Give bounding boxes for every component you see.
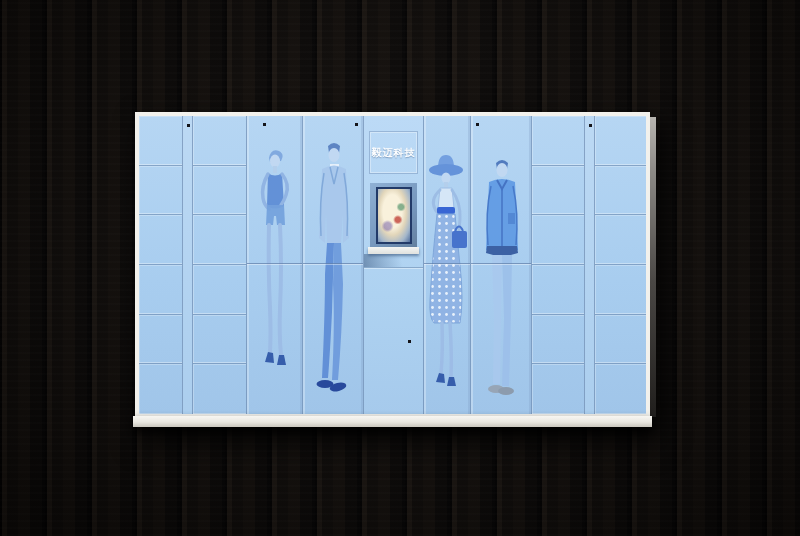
screen-recess [370, 183, 417, 247]
locker-cell [193, 166, 246, 216]
lock-dot [408, 340, 411, 343]
parcel-locker-cabinet: 毅迈科技 [135, 112, 656, 429]
screen-bezel [376, 187, 412, 244]
lock-dot [589, 124, 592, 127]
divider-stile [584, 116, 595, 414]
brand-label: 毅迈科技 [372, 146, 416, 160]
locker-cell [139, 315, 182, 365]
locker-cell [532, 315, 584, 365]
recess-shadow [364, 254, 419, 267]
cabinet-base [133, 416, 652, 427]
tall-locker-door-4 [470, 116, 531, 414]
locker-cell [193, 265, 246, 315]
locker-cell [139, 116, 182, 166]
brand-plate: 毅迈科技 [369, 131, 418, 174]
locker-cell [595, 116, 646, 166]
woman-tank-top-sketch-artwork [248, 148, 302, 406]
locker-cell [139, 166, 182, 216]
tall-locker-door-3 [423, 116, 470, 414]
locker-cell [595, 166, 646, 216]
console-column: 毅迈科技 [363, 116, 423, 414]
kiosk-screen [378, 189, 410, 242]
locker-cell [532, 166, 584, 216]
locker-cell [595, 265, 646, 315]
woman-hat-skirt-sketch-artwork [422, 150, 474, 405]
locker-cell [139, 215, 182, 265]
small-locker-column-1 [139, 116, 182, 414]
locker-cell [595, 315, 646, 365]
locker-cell [139, 364, 182, 414]
locker-cell [532, 265, 584, 315]
locker-cell [595, 215, 646, 265]
lock-dot [263, 123, 266, 126]
man-suit-sketch-artwork [305, 142, 363, 404]
small-locker-column-3 [531, 116, 584, 414]
small-locker-column-2 [193, 116, 246, 414]
tall-locker-door-1 [246, 116, 302, 414]
lock-dot [476, 123, 479, 126]
locker-cell [532, 215, 584, 265]
tall-locker-door-2 [302, 116, 363, 414]
console-lower-door [364, 267, 423, 414]
divider-stile [182, 116, 193, 414]
man-jacket-sketch-artwork [475, 158, 529, 406]
locker-cell [532, 364, 584, 414]
locker-cell [193, 315, 246, 365]
small-locker-column-4 [595, 116, 646, 414]
locker-cell [193, 116, 246, 166]
locker-cell [139, 265, 182, 315]
locker-cell [193, 364, 246, 414]
lock-dot [187, 124, 190, 127]
cabinet-front-frame: 毅迈科技 [135, 112, 650, 418]
keyboard-tray [368, 247, 419, 254]
locker-cell [193, 215, 246, 265]
locker-cell [595, 364, 646, 414]
cabinet-face: 毅迈科技 [139, 116, 646, 414]
locker-cell [532, 116, 584, 166]
lock-dot [355, 123, 358, 126]
